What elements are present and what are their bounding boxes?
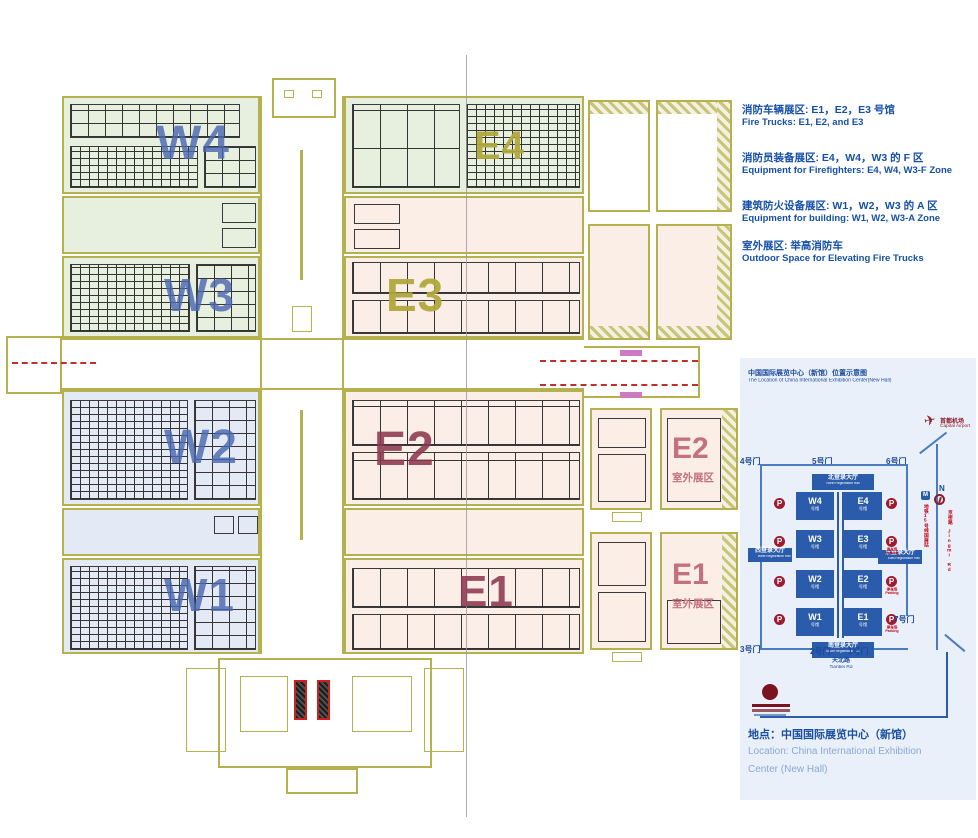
road-jingmi-zh: 京密路 bbox=[947, 510, 952, 524]
road-jingmi-en: Jingmi Rd bbox=[947, 529, 952, 572]
legend-en: Equipment for building: W1, W2, W3-A Zon… bbox=[742, 213, 976, 225]
road-corner bbox=[945, 634, 966, 652]
hall-label-e3: E3 bbox=[386, 272, 444, 318]
inset-title-en: The Location of China International Exhi… bbox=[748, 378, 891, 383]
legend-item: 消防车辆展区: E1，E2，E3 号馆 Fire Trucks: E1, E2,… bbox=[742, 104, 976, 129]
inset-hall-e1: E1 号馆 bbox=[844, 608, 882, 636]
east-entrance-wall bbox=[698, 346, 700, 398]
compass-needle bbox=[939, 496, 942, 502]
road-jingmi-line bbox=[936, 444, 938, 650]
outdoor-e2-code: E2 bbox=[672, 434, 709, 464]
inset-hall-code: W2 bbox=[796, 574, 834, 585]
road-tianbei-en: Tianbei Rd bbox=[813, 665, 869, 670]
gate-marker bbox=[620, 350, 642, 356]
hatch-band bbox=[722, 534, 736, 648]
escalator-block bbox=[294, 680, 307, 720]
north-entrance-detail bbox=[284, 90, 294, 98]
west-entrance-path bbox=[12, 362, 96, 364]
parking-icon: P bbox=[886, 536, 897, 547]
reg-north-en: North Registration Hall bbox=[826, 482, 860, 485]
inset-hall-sub: 号馆 bbox=[802, 545, 829, 549]
cross-corridor-wall bbox=[62, 338, 584, 340]
parking-caption-en: Parking bbox=[885, 592, 898, 596]
legend-item: 室外展区: 举高消防车 Outdoor Space for Elevating … bbox=[742, 240, 976, 265]
inset-title-zh: 中国国际展览中心（新馆）位置示意图 bbox=[748, 368, 867, 378]
logo-text-bar bbox=[752, 709, 790, 712]
inset-hall-e2: E2 号馆 bbox=[844, 570, 882, 598]
inset-border-line bbox=[946, 652, 948, 718]
outdoor-booth bbox=[598, 418, 646, 448]
hatch-band bbox=[590, 326, 648, 338]
hall-w3: W3 bbox=[62, 256, 260, 338]
hall-e4: E4 bbox=[344, 96, 584, 194]
hall-connector-east-bottom bbox=[344, 508, 584, 556]
outdoor-lot bbox=[588, 100, 650, 212]
legend-zh: 消防车辆展区: E1，E2，E3 号馆 bbox=[742, 104, 976, 117]
reg-north-zh: 北登录大厅 bbox=[812, 475, 874, 482]
logo-text-bar bbox=[752, 704, 790, 707]
inset-hall-sub: 号馆 bbox=[850, 623, 877, 627]
hall-label-w4: W4 bbox=[156, 120, 230, 168]
gate-2: 2号门 bbox=[810, 646, 830, 657]
gate-1: 1号门 bbox=[848, 646, 868, 657]
legend-en: Outdoor Space for Elevating Fire Trucks bbox=[742, 253, 976, 265]
caption-en2: Center (New Hall) bbox=[748, 764, 827, 775]
meeting-room bbox=[238, 516, 258, 534]
booth-grid bbox=[352, 104, 460, 188]
gate-marker bbox=[620, 392, 642, 398]
reg-west-en: West Registration Hall bbox=[758, 555, 782, 558]
north-entrance bbox=[272, 78, 336, 118]
cross-corridor-wall bbox=[62, 388, 584, 390]
outdoor-lot bbox=[590, 532, 652, 650]
south-entrance-porch bbox=[286, 768, 358, 794]
east-entrance-wall bbox=[584, 396, 700, 398]
reg-east-en: East Registration Hall bbox=[888, 557, 912, 560]
east-entrance-path bbox=[540, 360, 698, 362]
west-registration-hall: 西登录大厅 West Registration Hall bbox=[748, 548, 792, 562]
north-entrance-detail bbox=[312, 90, 322, 98]
gate-7: 7号门 bbox=[894, 614, 914, 625]
hall-label-w3: W3 bbox=[164, 272, 235, 318]
outdoor-lot bbox=[590, 408, 652, 510]
legend-zh: 建筑防火设备展区: W1，W2，W3 的 A 区 bbox=[742, 200, 976, 213]
outdoor-booth bbox=[598, 542, 646, 586]
legend-zh: 室外展区: 举高消防车 bbox=[742, 240, 976, 253]
outdoor-area-e1: E1 室外展区 bbox=[660, 532, 738, 650]
inset-hall-w4: W4 号馆 bbox=[796, 492, 834, 520]
hall-w4: W4 bbox=[62, 96, 260, 194]
hall-connector-west-bottom bbox=[62, 508, 260, 556]
parking-caption: 停车场 Parking bbox=[882, 548, 902, 555]
legend-item: 消防员装备展区: E4，W4，W3 的 F 区 Equipment for Fi… bbox=[742, 152, 976, 177]
metro-icon: M bbox=[921, 491, 930, 500]
parking-icon: P bbox=[774, 614, 785, 625]
outdoor-lot bbox=[588, 224, 650, 340]
gate-4: 4号门 bbox=[740, 456, 760, 467]
hatch-band bbox=[717, 102, 730, 210]
hall-e2: E2 bbox=[344, 390, 584, 506]
inset-border-line bbox=[760, 716, 948, 718]
inset-hall-e4: E4 号馆 bbox=[844, 492, 882, 520]
south-entrance-wing bbox=[186, 668, 226, 752]
inset-hall-w1: W1 号馆 bbox=[796, 608, 834, 636]
south-entrance-wing bbox=[424, 668, 464, 752]
parking-caption-en: Parking bbox=[885, 552, 898, 556]
legend-en: Fire Trucks: E1, E2, and E3 bbox=[742, 117, 976, 129]
inset-hall-w2: W2 号馆 bbox=[796, 570, 834, 598]
inset-hall-code: E1 bbox=[844, 612, 882, 623]
hall-connector-west-top bbox=[62, 196, 260, 254]
road-tianbei-label: 天北路 Tianbei Rd bbox=[806, 658, 876, 671]
inset-hall-code: E2 bbox=[844, 574, 882, 585]
inset-hall-code: W1 bbox=[796, 612, 834, 623]
east-entrance-path bbox=[540, 384, 698, 386]
outdoor-lot bbox=[656, 224, 732, 340]
outdoor-booth bbox=[598, 592, 646, 642]
compass-icon bbox=[934, 494, 945, 505]
corridor-core bbox=[292, 306, 312, 332]
hatch-band bbox=[717, 226, 730, 338]
hall-e3: E3 bbox=[344, 256, 584, 338]
outdoor-e2-label: 室外展区 bbox=[672, 470, 714, 485]
caption-en1: Location: China International Exhibition bbox=[748, 746, 921, 757]
parking-caption-en: Parking bbox=[885, 630, 898, 634]
metro-station-label: 地铁15号线国展站 bbox=[922, 504, 929, 547]
parking-caption: 停车场 Parking bbox=[882, 588, 902, 595]
hall-e1: E1 bbox=[344, 558, 584, 654]
hall-w1: W1 bbox=[62, 558, 260, 654]
east-entrance-wall bbox=[584, 346, 700, 348]
hall-w2: W2 bbox=[62, 390, 260, 506]
inset-hall-sub: 号馆 bbox=[802, 507, 829, 511]
parking-icon: P bbox=[886, 576, 897, 587]
legend-en: Equipment for Firefighters: E4, W4, W3-F… bbox=[742, 165, 976, 177]
hall-label-e4: E4 bbox=[474, 126, 525, 166]
inset-hall-code: E4 bbox=[844, 496, 882, 507]
south-entrance-room bbox=[240, 676, 288, 732]
meeting-room bbox=[354, 204, 400, 224]
inset-hall-sub: 号馆 bbox=[850, 545, 877, 549]
hall-connector-east-top bbox=[344, 196, 584, 254]
hall-label-e2: E2 bbox=[374, 426, 435, 474]
road-tianbei-zh: 天北路 bbox=[806, 658, 876, 665]
parking-icon: P bbox=[886, 498, 897, 509]
outdoor-booth bbox=[598, 454, 646, 502]
airport-road bbox=[919, 432, 947, 454]
hatch-band bbox=[722, 410, 736, 508]
inset-corridor bbox=[837, 492, 839, 638]
legend-zh: 消防员装备展区: E4，W4，W3 的 F 区 bbox=[742, 152, 976, 165]
inset-hall-code: W4 bbox=[796, 496, 834, 507]
outdoor-area-e2: E2 室外展区 bbox=[660, 408, 738, 510]
road-north bbox=[760, 464, 908, 466]
lot-tab bbox=[612, 652, 642, 662]
north-registration-hall: 北登录大厅 North Registration Hall bbox=[812, 474, 874, 490]
airplane-icon: ✈ bbox=[922, 411, 937, 430]
meeting-room bbox=[222, 203, 256, 223]
corridor-rail bbox=[300, 150, 303, 280]
outdoor-e1-label: 室外展区 bbox=[672, 596, 714, 611]
meeting-room bbox=[354, 229, 400, 249]
location-inset-map: 中国国际展览中心（新馆）位置示意图 The Location of China … bbox=[740, 358, 976, 800]
exhibition-floorplan-page: W4 W3 W2 W1 E4 E3 E2 bbox=[0, 0, 978, 838]
hall-label-w1: W1 bbox=[164, 572, 235, 618]
inset-hall-w3: W3 号馆 bbox=[796, 530, 834, 558]
west-entrance bbox=[6, 336, 62, 394]
gate-3: 3号门 bbox=[740, 644, 760, 655]
inset-hall-sub: 号馆 bbox=[850, 507, 877, 511]
escalator-block bbox=[317, 680, 330, 720]
inset-hall-code: E3 bbox=[844, 534, 882, 545]
south-entrance-room bbox=[352, 676, 412, 732]
airport-en: Capital Airport bbox=[940, 424, 970, 429]
inset-hall-sub: 号馆 bbox=[802, 623, 829, 627]
parking-caption: 停车场 Parking bbox=[882, 626, 902, 633]
hatch-band bbox=[590, 102, 648, 114]
inset-hall-sub: 号馆 bbox=[802, 585, 829, 589]
parking-icon: P bbox=[774, 498, 785, 509]
lot-tab bbox=[612, 512, 642, 522]
inset-hall-sub: 号馆 bbox=[850, 585, 877, 589]
hall-label-w2: W2 bbox=[164, 424, 238, 472]
inset-hall-e3: E3 号馆 bbox=[844, 530, 882, 558]
corridor-wall-left bbox=[260, 96, 262, 654]
corridor-rail bbox=[300, 410, 303, 540]
page-fold-line bbox=[466, 55, 467, 817]
meeting-room bbox=[222, 228, 256, 248]
caption-zh: 地点：中国国际展览中心（新馆） bbox=[748, 726, 913, 742]
hall-label-e1: E1 bbox=[458, 570, 514, 614]
parking-icon: P bbox=[774, 576, 785, 587]
compass-n-label: N bbox=[939, 484, 945, 493]
meeting-room bbox=[214, 516, 234, 534]
outdoor-e1-code: E1 bbox=[672, 560, 709, 590]
organizer-logo bbox=[762, 684, 778, 700]
reg-west-zh: 西登录大厅 bbox=[748, 548, 792, 555]
inset-hall-code: W3 bbox=[796, 534, 834, 545]
parking-icon: P bbox=[774, 536, 785, 547]
road-jingmi-label: 京密路 Jingmi Rd bbox=[946, 510, 953, 572]
legend-item: 建筑防火设备展区: W1，W2，W3 的 A 区 Equipment for b… bbox=[742, 200, 976, 225]
outdoor-lot bbox=[656, 100, 732, 212]
road-east bbox=[906, 466, 908, 616]
